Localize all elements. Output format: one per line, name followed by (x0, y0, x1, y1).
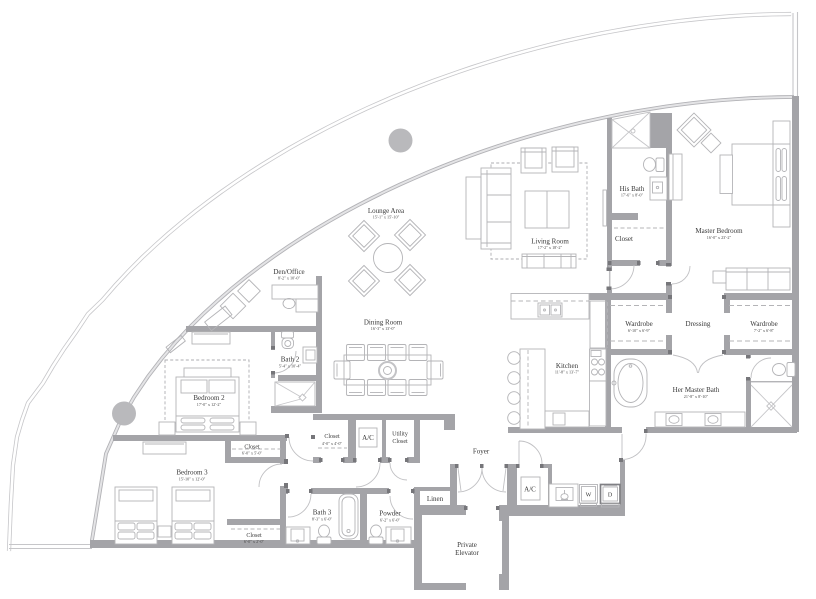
svg-text:Bath 2: Bath 2 (281, 356, 300, 364)
svg-text:Linen: Linen (427, 495, 444, 503)
svg-text:8'-3" x 6'-0": 8'-3" x 6'-0" (312, 517, 333, 522)
svg-text:15'-10" x 12'-0": 15'-10" x 12'-0" (179, 477, 206, 482)
svg-text:6'-0" x 2'-0": 6'-0" x 2'-0" (244, 539, 265, 544)
svg-text:D: D (608, 493, 613, 499)
svg-text:17'-2" x 18'-2": 17'-2" x 18'-2" (538, 245, 563, 250)
svg-text:Foyer: Foyer (473, 448, 490, 456)
svg-text:Utility: Utility (392, 432, 408, 438)
svg-text:16'-0" x 23'-2": 16'-0" x 23'-2" (707, 235, 732, 240)
svg-text:8'-2" x 10'-0": 8'-2" x 10'-0" (278, 276, 301, 281)
svg-text:6'-2" x 6'-0": 6'-2" x 6'-0" (380, 518, 401, 523)
svg-text:Powder: Powder (379, 510, 401, 518)
svg-text:A/C: A/C (362, 434, 374, 442)
svg-text:Wardrobe: Wardrobe (750, 320, 777, 328)
svg-text:W: W (586, 493, 592, 499)
svg-text:21'-8" x 8'-10": 21'-8" x 8'-10" (684, 394, 709, 399)
svg-text:Bedroom 2: Bedroom 2 (193, 394, 225, 402)
svg-text:Wardrobe: Wardrobe (625, 320, 652, 328)
svg-text:7'-2" x 6'-8": 7'-2" x 6'-8" (754, 328, 775, 333)
svg-text:Closet: Closet (615, 235, 633, 243)
svg-text:Closet: Closet (324, 434, 340, 440)
svg-text:6'-10" x 6'-9": 6'-10" x 6'-9" (628, 328, 651, 333)
svg-text:5'-4" x 10'-4": 5'-4" x 10'-4" (279, 364, 302, 369)
svg-text:Master Bedroom: Master Bedroom (695, 227, 743, 235)
svg-text:17'-6" x 8'-0": 17'-6" x 8'-0" (621, 193, 644, 198)
svg-text:Elevator: Elevator (455, 549, 479, 557)
svg-text:Closet: Closet (392, 439, 408, 445)
svg-text:16'-3" x 13'-0": 16'-3" x 13'-0" (371, 326, 396, 331)
svg-text:Private: Private (457, 541, 477, 549)
svg-text:6'-0" x 5'-0": 6'-0" x 5'-0" (242, 451, 263, 456)
svg-text:11'-8" x 13'-7": 11'-8" x 13'-7" (555, 370, 580, 375)
svg-text:A/C: A/C (524, 486, 536, 494)
svg-text:Bedroom 3: Bedroom 3 (176, 469, 208, 477)
svg-text:15'-1" x 15'-10": 15'-1" x 15'-10" (373, 215, 400, 220)
svg-text:Bath 3: Bath 3 (313, 509, 332, 517)
svg-text:17'-0" x 12'-2": 17'-0" x 12'-2" (197, 402, 222, 407)
svg-text:4'-0" x 4'-0": 4'-0" x 4'-0" (322, 441, 343, 446)
svg-text:Her Master Bath: Her Master Bath (673, 386, 720, 394)
svg-text:Dressing: Dressing (686, 320, 711, 328)
